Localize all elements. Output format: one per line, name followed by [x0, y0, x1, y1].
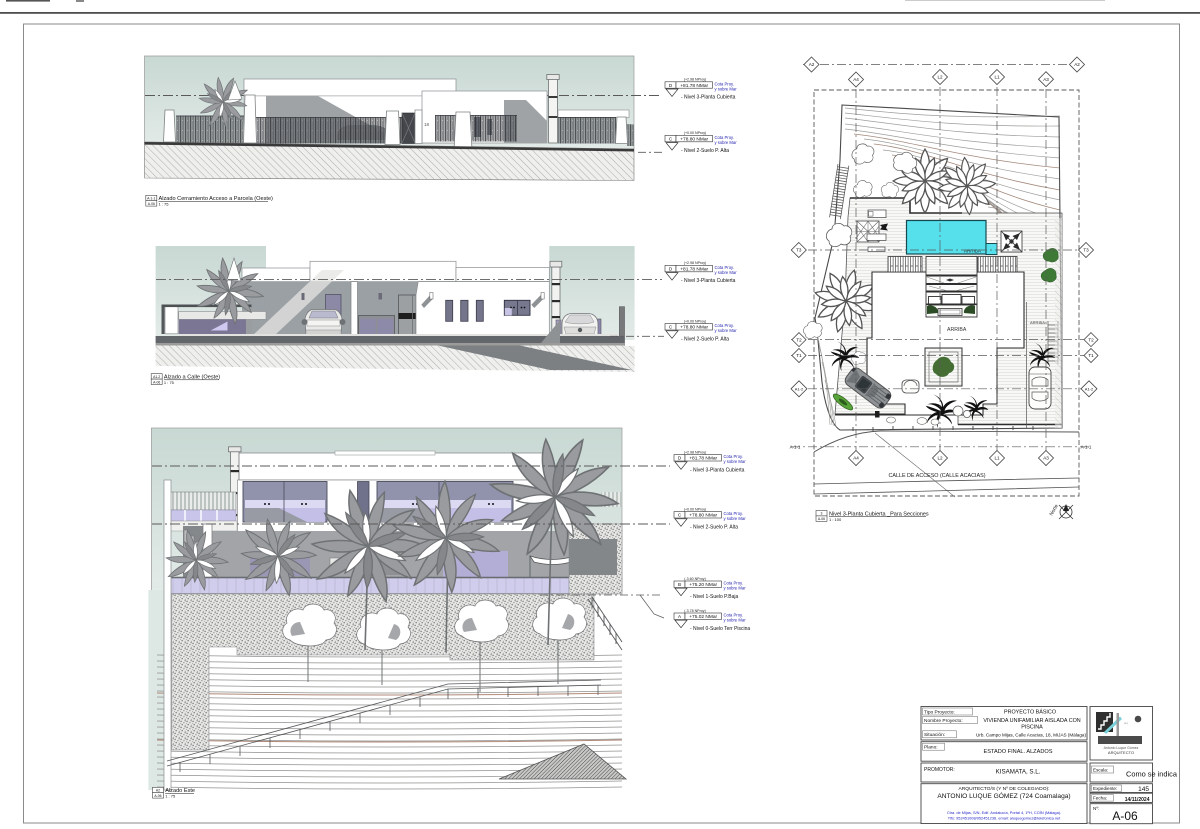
svg-text:A3: A3 [1043, 456, 1049, 461]
svg-text:(-3.78 NProy): (-3.78 NProy) [684, 609, 706, 613]
svg-text:1 : 75: 1 : 75 [164, 380, 175, 385]
svg-text:VIVIENDA UNIFAMILIAR AISLADA C: VIVIENDA UNIFAMILIAR AISLADA CON [983, 718, 1080, 724]
svg-text:y sobre Mar: y sobre Mar [724, 586, 747, 591]
svg-text:Nº:: Nº: [1093, 806, 1099, 811]
svg-text:L1: L1 [994, 456, 1000, 461]
svg-text:Escala:: Escala: [1093, 767, 1108, 772]
svg-text:A2: A2 [156, 789, 160, 793]
svg-text:(-3.60 NProy): (-3.60 NProy) [684, 577, 706, 581]
svg-text:y sobre Mar: y sobre Mar [715, 328, 738, 333]
svg-text:+81.78 NMar: +81.78 NMar [680, 83, 708, 89]
svg-text:+75.02 NMar: +75.02 NMar [689, 614, 717, 620]
svg-text:ARQUITECTO: ARQUITECTO [1108, 750, 1134, 755]
svg-text:arq: arq [1124, 721, 1128, 725]
svg-text:A3: A3 [1043, 77, 1049, 82]
svg-text:y sobre Mar: y sobre Mar [715, 270, 738, 275]
svg-text:3: 3 [821, 512, 823, 516]
svg-text:A1-2: A1-2 [1085, 386, 1094, 391]
svg-text:T2: T2 [1088, 337, 1094, 342]
svg-text:A-06: A-06 [154, 794, 161, 798]
svg-text:1 : 100: 1 : 100 [829, 517, 842, 522]
svg-text:A-06: A-06 [148, 202, 155, 206]
svg-text:y sobre Mar: y sobre Mar [715, 140, 738, 145]
svg-text:(+2.98 NProy): (+2.98 NProy) [684, 78, 706, 82]
svg-text:(+0.00 NProy): (+0.00 NProy) [684, 319, 706, 323]
svg-text:ESTADO FINAL. ALZADOS: ESTADO FINAL. ALZADOS [984, 749, 1053, 755]
svg-text:A-06: A-06 [1112, 809, 1138, 823]
svg-text:1 : 75: 1 : 75 [159, 202, 170, 207]
svg-text:Tipo Proyecto:: Tipo Proyecto: [924, 709, 955, 715]
svg-text:- Nivel 3-Planta Cubierta: - Nivel 3-Planta Cubierta [681, 278, 736, 284]
svg-text:y sobre Mar: y sobre Mar [724, 516, 747, 521]
svg-text:Situación:: Situación: [924, 732, 945, 738]
svg-text:Ctra. de Mijas, S/N, Edif. And: Ctra. de Mijas, S/N, Edif. Andalucía, Po… [947, 810, 1061, 815]
svg-text:(+0.00 NProy): (+0.00 NProy) [684, 507, 706, 511]
svg-text:T2: T2 [796, 337, 802, 342]
svg-text:- Nivel 0-Suelo Terr Piscina: - Nivel 0-Suelo Terr Piscina [690, 626, 750, 632]
svg-text:+78.80 NMar: +78.80 NMar [689, 513, 717, 519]
svg-text:A1-2: A1-2 [153, 375, 160, 379]
svg-text:(+0.00 NProy): (+0.00 NProy) [684, 131, 706, 135]
svg-text:ARRIBA: ARRIBA [947, 327, 967, 333]
svg-text:+78.80 NMar: +78.80 NMar [680, 325, 708, 331]
svg-text:ANTONIO LUQUE GÓMEZ (724 Coama: ANTONIO LUQUE GÓMEZ (724 Coamalaga) [937, 791, 1070, 800]
svg-text:1 : 75: 1 : 75 [165, 794, 176, 799]
svg-text:L2: L2 [937, 456, 943, 461]
svg-text:A2: A2 [1074, 62, 1080, 67]
svg-text:PROYECTO BÁSICO: PROYECTO BÁSICO [1004, 708, 1056, 715]
svg-text:(+2.98 NProy): (+2.98 NProy) [684, 261, 706, 265]
svg-text:+81.78 NMar: +81.78 NMar [689, 456, 717, 462]
svg-text:PISCINA: PISCINA [1021, 725, 1043, 731]
svg-text:A-1-1: A-1-1 [1081, 444, 1092, 449]
svg-text:Plano:: Plano: [924, 745, 938, 751]
svg-text:A2: A2 [809, 62, 815, 67]
svg-text:ARRIBA: ARRIBA [1030, 320, 1045, 325]
svg-text:A-06: A-06 [153, 380, 160, 384]
svg-text:Nombre Proyecto:: Nombre Proyecto: [924, 718, 963, 724]
svg-text:KISAMATA, S.L.: KISAMATA, S.L. [996, 768, 1041, 775]
svg-text:+75.20 NMar: +75.20 NMar [689, 582, 717, 588]
svg-text:- Nivel 2-Suelo P. Alta: - Nivel 2-Suelo P. Alta [681, 336, 729, 342]
svg-text:y sobre Mar: y sobre Mar [724, 618, 747, 623]
svg-text:CALLE DE ACCESO (CALLE ACACIAS: CALLE DE ACCESO (CALLE ACACIAS) [888, 473, 985, 479]
svg-text:18: 18 [424, 122, 430, 127]
svg-text:- Nivel 1-Suelo P.Baja: - Nivel 1-Suelo P.Baja [690, 594, 738, 600]
svg-text:- Nivel 3-Planta Cubierta: - Nivel 3-Planta Cubierta [681, 95, 736, 101]
svg-text:A-1-1: A-1-1 [147, 197, 155, 201]
svg-text:(+2.98 NProy): (+2.98 NProy) [684, 450, 706, 454]
svg-text:Expediente:: Expediente: [1093, 786, 1117, 791]
svg-text:14/11/2024: 14/11/2024 [1125, 797, 1150, 803]
svg-text:PROMOTOR:: PROMOTOR: [924, 767, 955, 773]
svg-text:Urb. Campo Mijas, Calle Acacia: Urb. Campo Mijas, Calle Acacias, 18, MIJ… [976, 732, 1087, 737]
svg-text:y sobre Mar: y sobre Mar [715, 86, 738, 91]
svg-text:Tlfs: 952451008/952451236. ema: Tlfs: 952451008/952451236. email: aluque… [948, 816, 1061, 821]
svg-text:A-06: A-06 [818, 517, 825, 521]
svg-text:T1: T1 [1088, 353, 1094, 358]
svg-text:+78.80 NMar: +78.80 NMar [680, 136, 708, 142]
svg-text:T3: T3 [1083, 248, 1089, 253]
svg-text:+81.78 NMar: +81.78 NMar [680, 266, 708, 272]
svg-text:ARQUITECTO/S (Y Nº DE COLEGIAD: ARQUITECTO/S (Y Nº DE COLEGIADO): [958, 786, 1049, 792]
svg-text:A4: A4 [853, 456, 859, 461]
svg-text:A1-2: A1-2 [795, 386, 804, 391]
svg-text:T3: T3 [796, 248, 802, 253]
svg-text:A4: A4 [853, 77, 859, 82]
svg-text:A-1-1: A-1-1 [790, 444, 801, 449]
svg-text:Fecha:: Fecha: [1093, 796, 1107, 801]
svg-text:ARRIBA: ARRIBA [964, 249, 982, 254]
svg-text:- Nivel 2-Suelo P. Alta: - Nivel 2-Suelo P. Alta [690, 524, 738, 530]
svg-text:y sobre Mar: y sobre Mar [724, 459, 747, 464]
svg-text:- Nivel 3-Planta Cubierta: - Nivel 3-Planta Cubierta [690, 467, 745, 473]
svg-text:L1: L1 [994, 75, 1000, 80]
svg-text:145: 145 [1138, 786, 1149, 793]
svg-text:Como se indica: Como se indica [1126, 770, 1178, 779]
svg-text:- Nivel 2-Suelo P. Alta: - Nivel 2-Suelo P. Alta [681, 148, 729, 154]
svg-text:L2: L2 [937, 75, 943, 80]
svg-text:B: B [678, 582, 681, 587]
svg-text:T1: T1 [796, 353, 802, 358]
